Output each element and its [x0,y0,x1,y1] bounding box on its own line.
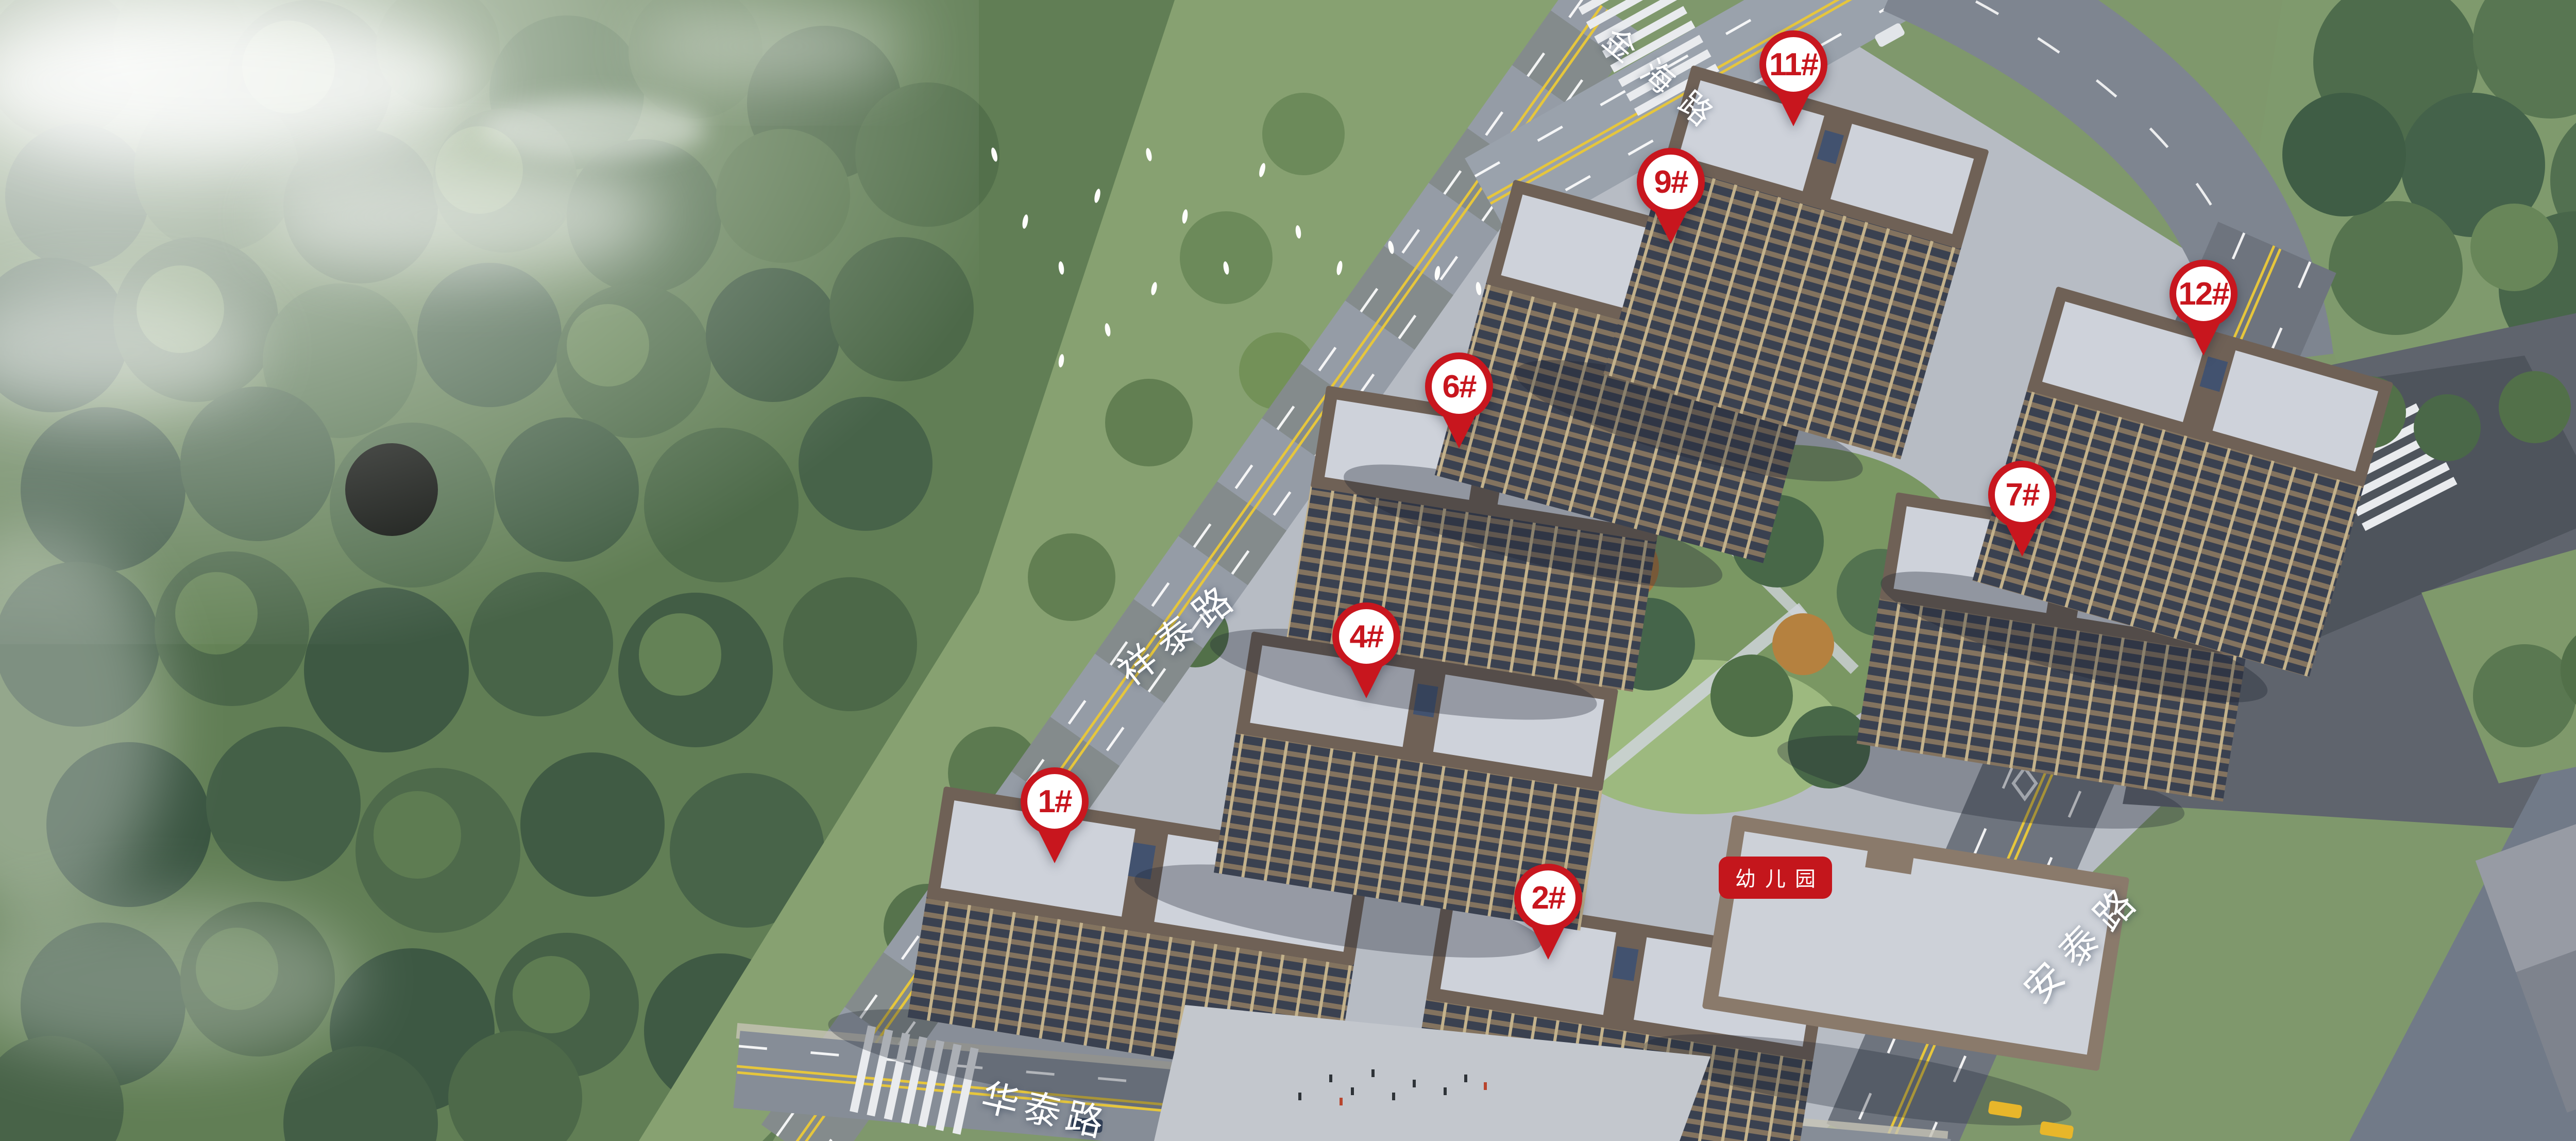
building-marker-label: 1# [1021,767,1089,835]
pin-tail-icon [2187,323,2220,356]
building-marker-7[interactable]: 7# [1988,461,2056,557]
building-marker-label: 12# [2170,260,2238,328]
building-marker-label: 4# [1332,602,1400,670]
pin-tail-icon [2006,524,2039,557]
building-marker-label: 2# [1514,864,1582,932]
aerial-site-rendering: 金海路 祥泰路 安泰路 华泰路 1# 2# 4# 6# 7# 9# 11# 12… [0,0,2576,1141]
building-marker-9[interactable]: 9# [1637,148,1705,244]
building-marker-label: 7# [1988,461,2056,529]
building-marker-6[interactable]: 6# [1425,353,1493,448]
building-marker-label: 9# [1637,148,1705,216]
pin-tail-icon [1443,415,1476,448]
kindergarten-badge: 幼儿园 [1719,857,1832,899]
pin-tail-icon [1350,665,1383,698]
pin-tail-icon [1654,211,1687,244]
building-marker-label: 6# [1425,353,1493,421]
rendering-background [0,0,2576,1141]
building-marker-12[interactable]: 12# [2170,260,2238,356]
building-marker-4[interactable]: 4# [1332,602,1400,698]
pin-tail-icon [1038,830,1071,863]
pin-tail-icon [1532,927,1565,960]
building-marker-1[interactable]: 1# [1021,767,1089,863]
building-marker-11[interactable]: 11# [1759,30,1827,126]
building-marker-2[interactable]: 2# [1514,864,1582,960]
building-marker-label: 11# [1759,30,1827,98]
pin-tail-icon [1777,93,1810,126]
